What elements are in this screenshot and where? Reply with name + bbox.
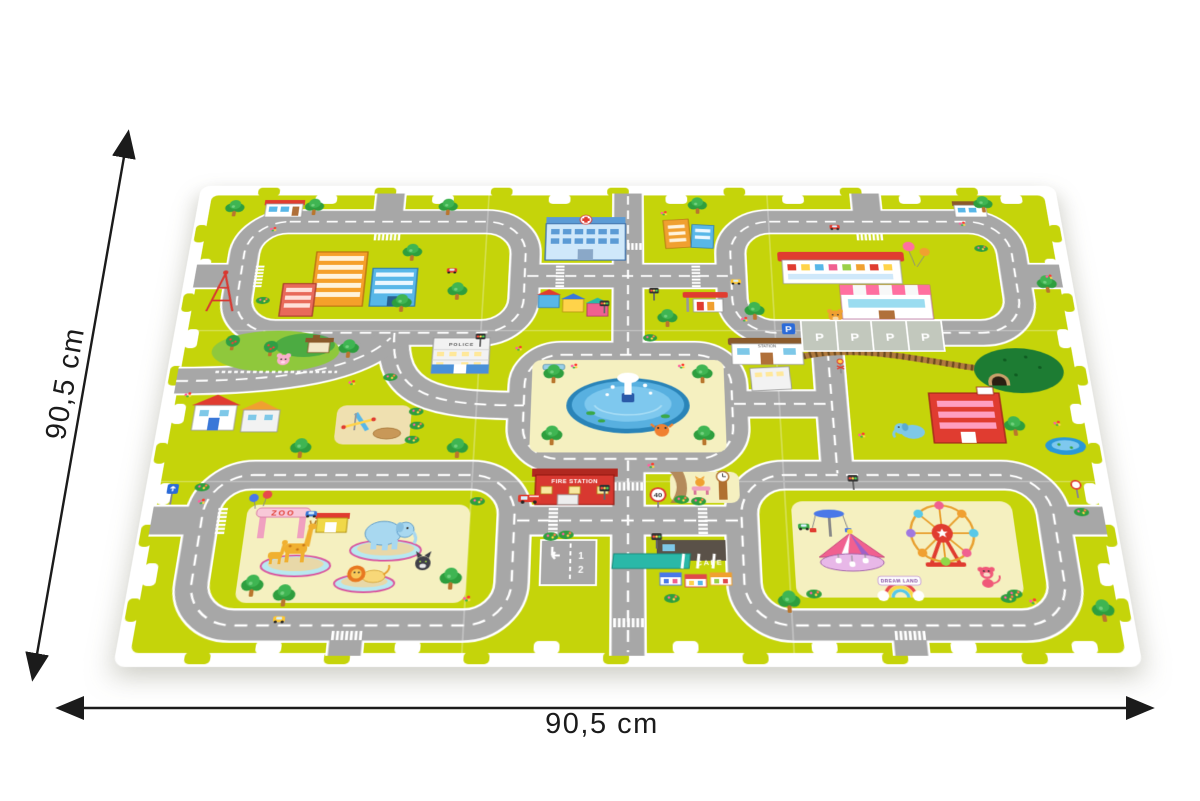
zoo: ZOO [234,491,472,607]
product-photo: STATION [0,0,1200,801]
parking-bay-letter: P [885,331,895,343]
zoo-sign: ZOO [271,509,296,518]
parking-bay-letter: P [850,331,860,343]
parking-bay-letter: P [815,331,825,343]
amusement-park: DREAM LAND [791,501,1026,601]
police-sign: POLICE [449,343,474,348]
playground [333,405,425,444]
shop-small [263,200,306,217]
police-station: POLICE [431,338,490,374]
width-dimension-label: 90,5 cm [502,708,702,741]
puzzle-play-mat: STATION [113,186,1143,667]
market-stalls [660,573,732,587]
red-hotel [928,387,1006,443]
parking-lot: P P P P P [781,320,944,351]
clock-park [670,471,740,505]
parking-sign: P [782,323,796,334]
white-office-buildings [750,367,792,391]
fountain-park [529,360,727,452]
height-dimension-label: 90,5 cm [36,302,96,465]
dream-land-sign: DREAM LAND [881,579,919,584]
parking-spot-number: 2 [578,565,584,575]
cafe-sign: CAFE [696,560,723,568]
market-building [840,285,934,319]
train-station: STATION [728,338,808,365]
hospital [545,215,625,260]
svg-text:P: P [785,326,793,335]
fire-station-sign: FIRE STATION [551,479,598,485]
ticket-booth [314,513,350,532]
station-sign: STATION [758,344,777,348]
svg-text:40: 40 [654,493,662,500]
mat-graphic: STATION [113,186,1143,667]
parking-spot-number: 1 [578,551,584,561]
parking-bay-letter: P [920,331,930,343]
shopping-mall [777,252,907,284]
